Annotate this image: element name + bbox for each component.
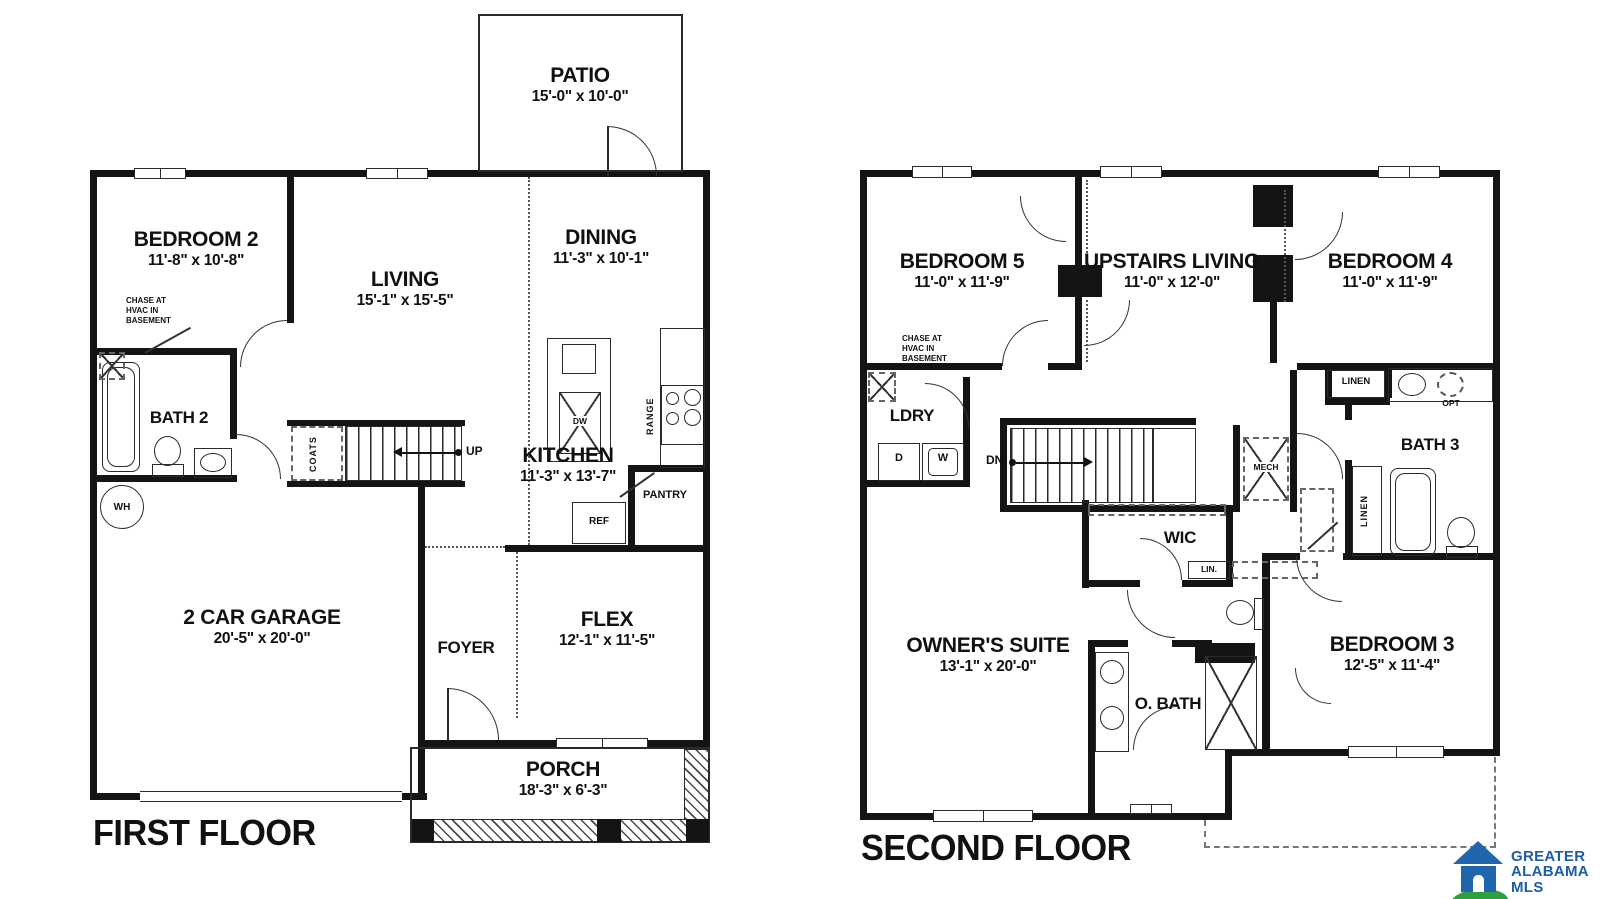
sink-or-toilet — [1398, 373, 1426, 396]
logo-line3: MLS — [1511, 880, 1589, 895]
room-label-upstairs-living: UPSTAIRS LIVING 11'-0" x 12'-0" — [1052, 250, 1292, 291]
door-arc — [240, 320, 287, 367]
porch-post — [597, 819, 621, 842]
wall — [1262, 553, 1270, 756]
room-name: BEDROOM 3 — [1292, 633, 1492, 657]
room-dims: 11'-3" x 13'-7" — [468, 468, 668, 485]
room-label-porch: PORCH 18'-3" x 6'-3" — [463, 758, 663, 799]
window — [912, 166, 972, 178]
wall — [860, 813, 1232, 820]
optional-sink — [1437, 372, 1464, 397]
dashed-closet — [1300, 488, 1334, 552]
room-name: UPSTAIRS LIVING — [1052, 250, 1292, 274]
chase-box — [99, 352, 125, 380]
roof-dashed-line — [1494, 757, 1496, 848]
dotted-divider — [1086, 300, 1088, 362]
burner-or-sink — [666, 412, 679, 425]
room-name: KITCHEN — [468, 444, 668, 468]
pantry-label: PANTRY — [630, 489, 700, 501]
first-floor-title: FIRST FLOOR — [93, 812, 316, 854]
fixture-box — [1254, 598, 1264, 630]
opt-sink-label: OPT — [1437, 398, 1465, 408]
bathtub — [1390, 468, 1436, 556]
arrow-head — [393, 447, 402, 457]
room-dims: 20'-5" x 20'-0" — [142, 630, 382, 647]
floor-plan-page: PATIO 15'-0" x 10'-0" BEDROOM 2 11'-8" x… — [0, 0, 1600, 899]
dotted-divider — [425, 546, 505, 548]
room-name: BEDROOM 5 — [862, 250, 1062, 274]
room-label-flex: FLEX 12'-1" x 11'-5" — [507, 608, 707, 649]
room-label-bedroom4: BEDROOM 4 11'-0" x 11'-9" — [1290, 250, 1490, 291]
room-label-ldry: LDRY — [852, 406, 972, 425]
porch-hatch — [412, 819, 708, 842]
washer-label: W — [922, 452, 964, 464]
room-name: FLEX — [507, 608, 707, 632]
room-dims: 11'-0" x 11'-9" — [1290, 274, 1490, 291]
porch-post — [686, 819, 709, 842]
room-label-dining: DINING 11'-3" x 10'-1" — [501, 226, 701, 267]
stairs — [1010, 428, 1153, 503]
door-arc — [1084, 300, 1130, 346]
room-label-bath2: BATH 2 — [119, 408, 239, 427]
room-label-bath3: BATH 3 — [1370, 435, 1490, 454]
door-arc — [1002, 320, 1048, 366]
sink-or-toilet — [1447, 517, 1475, 548]
room-name: BATH 3 — [1370, 435, 1490, 454]
door-leaf — [447, 688, 449, 740]
porch-post — [412, 819, 434, 842]
room-dims: 13'-1" x 20'-0" — [868, 658, 1108, 675]
wall — [287, 481, 465, 487]
wall — [1253, 185, 1293, 227]
stairs-up-label: UP — [466, 444, 483, 458]
logo-line1: GREATER — [1511, 849, 1589, 864]
logo-line2: ALABAMA — [1511, 864, 1589, 879]
lin-label: LIN. — [1188, 564, 1230, 574]
room-name: LDRY — [852, 406, 972, 425]
door-arc — [1127, 590, 1175, 638]
room-dims: 11'-0" x 12'-0" — [1052, 274, 1292, 291]
window — [366, 168, 428, 179]
burner-or-sink — [666, 392, 679, 405]
room-label-patio: PATIO 15'-0" x 10'-0" — [480, 64, 680, 105]
window — [1348, 746, 1444, 758]
porch-hatch — [684, 749, 709, 820]
arrow-dot — [1009, 459, 1016, 466]
garage-door-opening — [140, 791, 402, 802]
dryer-label: D — [878, 452, 920, 464]
roof-dashed-line — [1204, 820, 1206, 848]
door-arc — [447, 688, 499, 740]
wall — [1290, 425, 1297, 512]
window — [1378, 166, 1440, 178]
room-label-wic: WIC — [1130, 528, 1230, 547]
stairs-dn-label: DN — [986, 453, 1003, 467]
dishwasher-label: DW — [561, 416, 599, 426]
room-name: BATH 2 — [119, 408, 239, 427]
sink-or-toilet — [200, 453, 226, 472]
burner-or-sink — [684, 409, 701, 426]
wall — [1290, 370, 1297, 425]
linen-vertical-label: LINEN — [1359, 478, 1369, 544]
arrow-line — [1016, 462, 1086, 464]
door-arc — [1297, 433, 1343, 479]
room-label-living: LIVING 15'-1" x 15'-5" — [305, 268, 505, 309]
wall — [1000, 418, 1196, 425]
door-arc — [236, 434, 281, 479]
sink-or-toilet — [154, 436, 181, 466]
room-label-owners-suite: OWNER'S SUITE 13'-1" x 20'-0" — [868, 634, 1108, 675]
mech-label: MECH — [1243, 462, 1289, 472]
logo-roof — [1453, 841, 1503, 864]
wall — [1325, 398, 1390, 405]
logo-door — [1473, 875, 1484, 892]
room-label-obath: O. BATH — [1108, 694, 1228, 713]
room-dims: 15'-1" x 15'-5" — [305, 292, 505, 309]
wall — [1345, 398, 1352, 420]
room-label-kitchen: KITCHEN 11'-3" x 13'-7" — [468, 444, 668, 485]
arrow-head — [1084, 457, 1093, 467]
window — [134, 168, 186, 179]
logo-text: GREATER ALABAMA MLS — [1511, 841, 1589, 898]
arrow-line — [400, 452, 458, 454]
wall — [1345, 460, 1352, 555]
door-leaf — [607, 126, 609, 176]
window — [1100, 166, 1162, 178]
wall — [1075, 297, 1082, 370]
wall — [1085, 580, 1140, 587]
room-name: O. BATH — [1108, 694, 1228, 713]
room-dims: 18'-3" x 6'-3" — [463, 782, 663, 799]
room-dims: 12'-5" x 11'-4" — [1292, 657, 1492, 674]
door-arc — [1020, 196, 1066, 242]
burner-or-sink — [684, 389, 701, 406]
water-heater-label: WH — [114, 502, 131, 513]
room-dims: 11'-0" x 11'-9" — [862, 274, 1062, 291]
room-name: BEDROOM 2 — [96, 228, 296, 252]
wall — [1493, 170, 1500, 756]
house-icon — [1452, 841, 1506, 898]
sink-or-toilet — [1226, 600, 1254, 625]
room-dims: 11'-3" x 10'-1" — [501, 250, 701, 267]
linen-label: LINEN — [1327, 376, 1385, 387]
chase-note-f2: CHASE AT HVAC IN BASEMENT — [902, 334, 947, 364]
fixture-box — [1153, 428, 1196, 503]
room-name: DINING — [501, 226, 701, 250]
room-label-bedroom5: BEDROOM 5 11'-0" x 11'-9" — [862, 250, 1062, 291]
window — [933, 810, 1033, 822]
second-floor-title: SECOND FLOOR — [861, 827, 1131, 869]
room-label-garage: 2 CAR GARAGE 20'-5" x 20'-0" — [142, 606, 382, 647]
room-name: 2 CAR GARAGE — [142, 606, 382, 630]
wall — [1225, 749, 1232, 820]
room-name: BEDROOM 4 — [1290, 250, 1490, 274]
refrigerator-label: REF — [572, 516, 626, 527]
room-name: WIC — [1130, 528, 1230, 547]
room-name: PATIO — [480, 64, 680, 88]
room-name: PORCH — [463, 758, 663, 782]
coats-closet-label: COATS — [308, 428, 318, 480]
room-name: OWNER'S SUITE — [868, 634, 1108, 658]
chase-note-f1: CHASE AT HVAC IN BASEMENT — [126, 296, 171, 326]
door-arc — [1296, 556, 1342, 602]
wall — [963, 377, 970, 480]
wall — [1270, 302, 1277, 363]
room-label-bedroom3: BEDROOM 3 12'-5" x 11'-4" — [1292, 633, 1492, 674]
fixture-box — [562, 344, 596, 374]
room-name: LIVING — [305, 268, 505, 292]
room-dims: 12'-1" x 11'-5" — [507, 632, 707, 649]
room-dims: 15'-0" x 10'-0" — [480, 88, 680, 105]
room-label-bedroom2: BEDROOM 2 11'-8" x 10'-8" — [96, 228, 296, 269]
wall — [1048, 363, 1078, 370]
chase-box — [868, 372, 896, 402]
wall — [505, 545, 710, 552]
wall — [1233, 425, 1240, 512]
window — [1130, 804, 1172, 814]
water-heater: WH — [100, 485, 144, 529]
wall — [867, 480, 970, 487]
room-dims: 11'-8" x 10'-8" — [96, 252, 296, 269]
dashed-closet — [1088, 504, 1226, 516]
mls-logo: GREATER ALABAMA MLS — [1452, 841, 1589, 898]
range-label: RANGE — [645, 387, 655, 445]
wall — [867, 363, 1002, 370]
